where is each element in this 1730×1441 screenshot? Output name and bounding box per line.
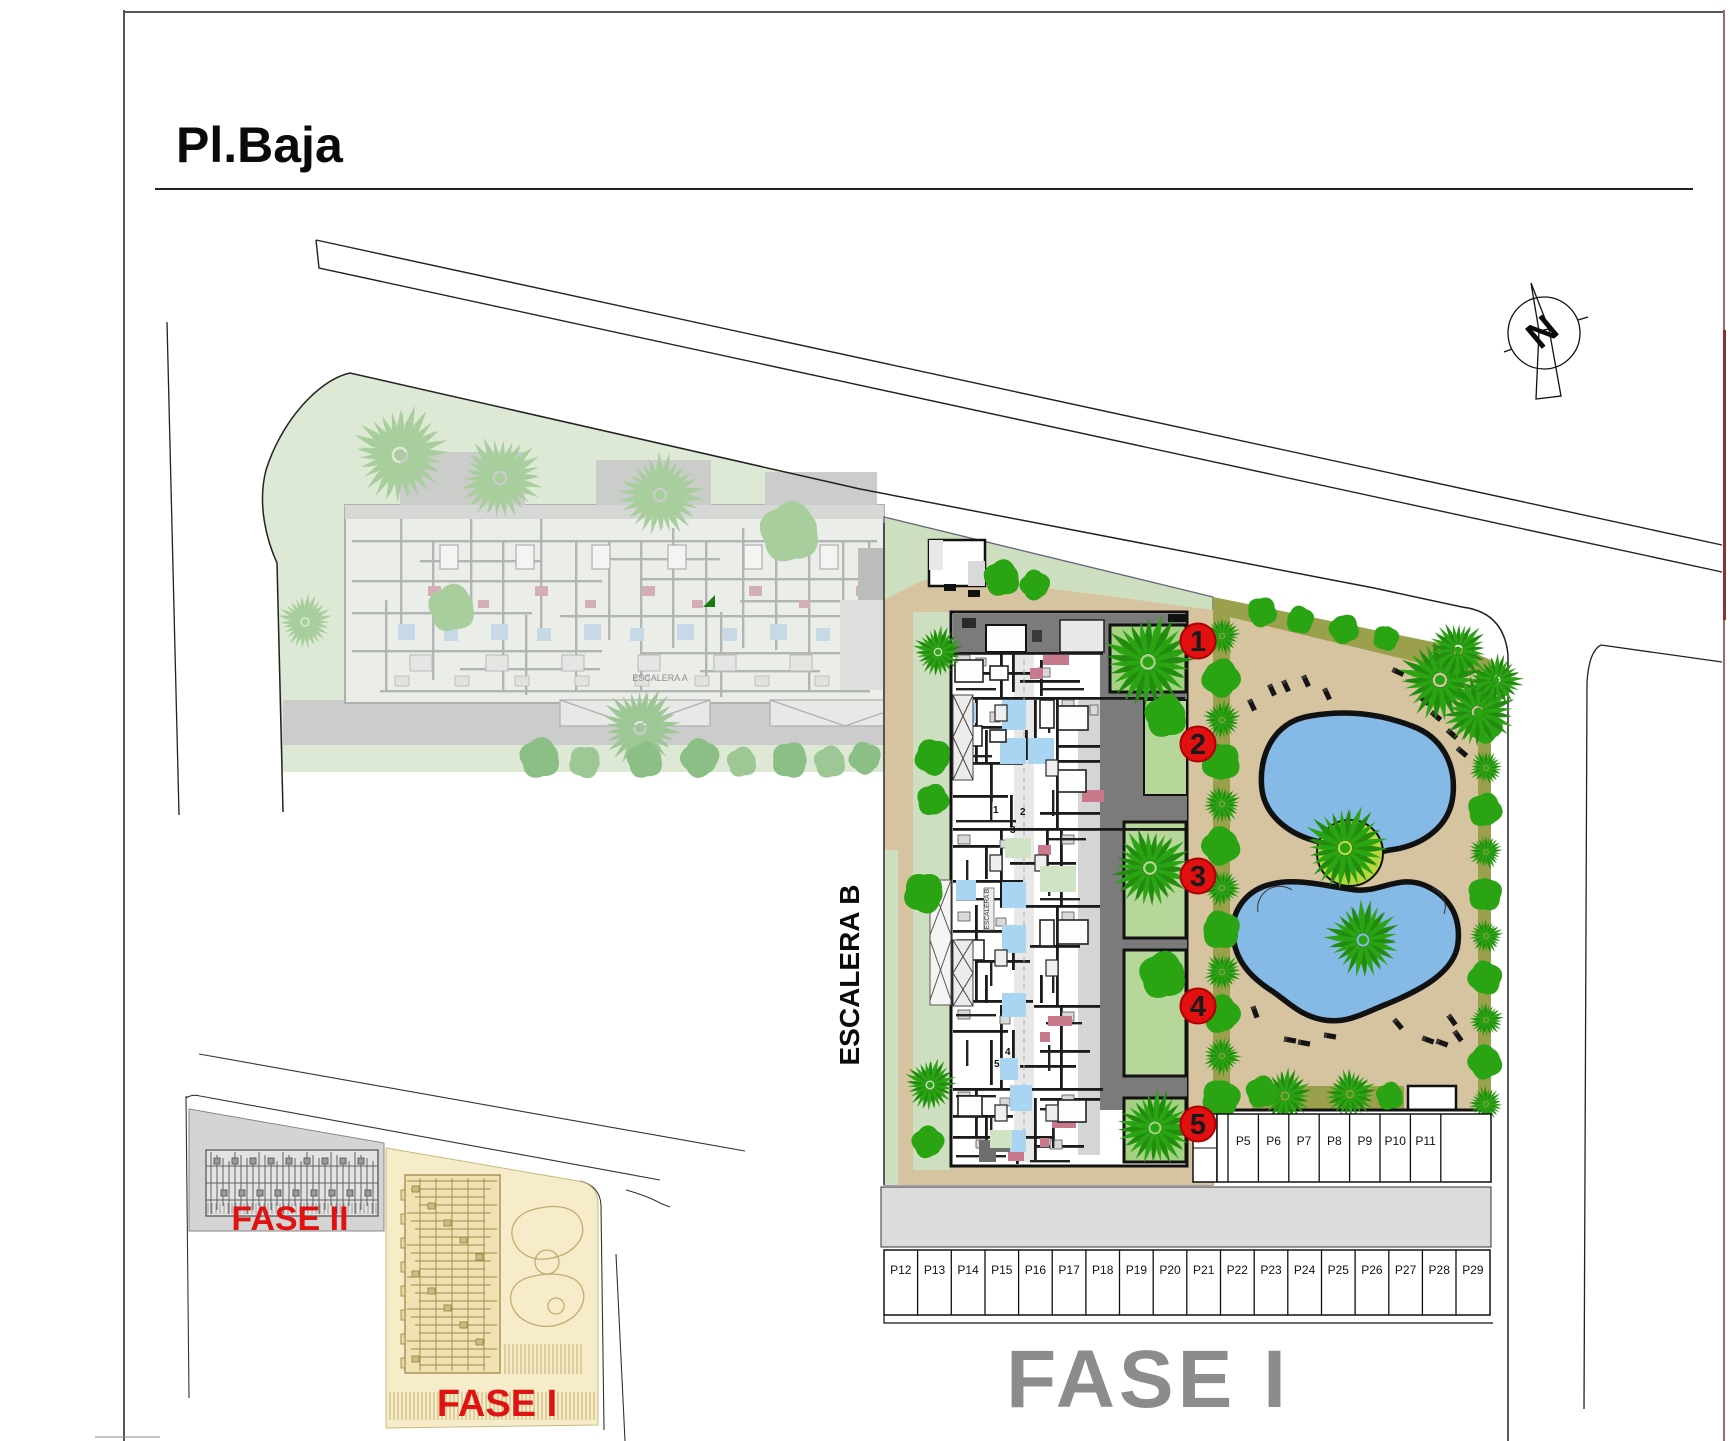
svg-text:ESCALERA A: ESCALERA A	[632, 673, 688, 683]
svg-text:3: 3	[1190, 861, 1206, 893]
svg-text:FASE II: FASE II	[231, 1200, 348, 1238]
svg-text:N: N	[1519, 308, 1567, 358]
svg-text:5: 5	[1190, 1109, 1206, 1141]
svg-text:P27: P27	[1395, 1263, 1417, 1277]
svg-text:P28: P28	[1429, 1263, 1451, 1277]
svg-text:P11: P11	[1415, 1134, 1436, 1148]
svg-text:2: 2	[1190, 729, 1206, 761]
svg-text:4: 4	[1005, 1047, 1011, 1058]
svg-text:Pl.Baja: Pl.Baja	[176, 117, 344, 173]
svg-text:P9: P9	[1357, 1134, 1372, 1148]
svg-text:FASE I: FASE I	[437, 1383, 557, 1425]
svg-text:P18: P18	[1092, 1263, 1114, 1277]
svg-text:P14: P14	[957, 1263, 979, 1277]
svg-text:P7: P7	[1297, 1134, 1312, 1148]
svg-text:P8: P8	[1327, 1134, 1342, 1148]
svg-text:ESCALERA B: ESCALERA B	[984, 889, 991, 929]
svg-text:FASE I: FASE I	[1006, 1334, 1290, 1425]
svg-text:2: 2	[1020, 807, 1026, 818]
svg-text:ESCALERA B: ESCALERA B	[834, 885, 865, 1066]
svg-text:P17: P17	[1058, 1263, 1080, 1277]
svg-text:P20: P20	[1159, 1263, 1181, 1277]
svg-text:P5: P5	[1236, 1134, 1251, 1148]
svg-text:3: 3	[1010, 825, 1016, 836]
svg-text:1: 1	[993, 805, 999, 816]
svg-text:4: 4	[1190, 991, 1206, 1023]
svg-text:P10: P10	[1385, 1134, 1407, 1148]
svg-text:P26: P26	[1361, 1263, 1383, 1277]
svg-text:P6: P6	[1266, 1134, 1281, 1148]
svg-text:P24: P24	[1294, 1263, 1316, 1277]
svg-text:P16: P16	[1025, 1263, 1047, 1277]
svg-text:P25: P25	[1328, 1263, 1350, 1277]
svg-text:P29: P29	[1462, 1263, 1484, 1277]
svg-text:P13: P13	[924, 1263, 946, 1277]
svg-text:P12: P12	[890, 1263, 912, 1277]
svg-text:5: 5	[994, 1059, 1000, 1070]
svg-text:P23: P23	[1260, 1263, 1282, 1277]
svg-text:P22: P22	[1227, 1263, 1249, 1277]
svg-text:P15: P15	[991, 1263, 1013, 1277]
svg-text:1: 1	[1190, 626, 1206, 658]
svg-text:P19: P19	[1126, 1263, 1148, 1277]
svg-text:P21: P21	[1193, 1263, 1215, 1277]
